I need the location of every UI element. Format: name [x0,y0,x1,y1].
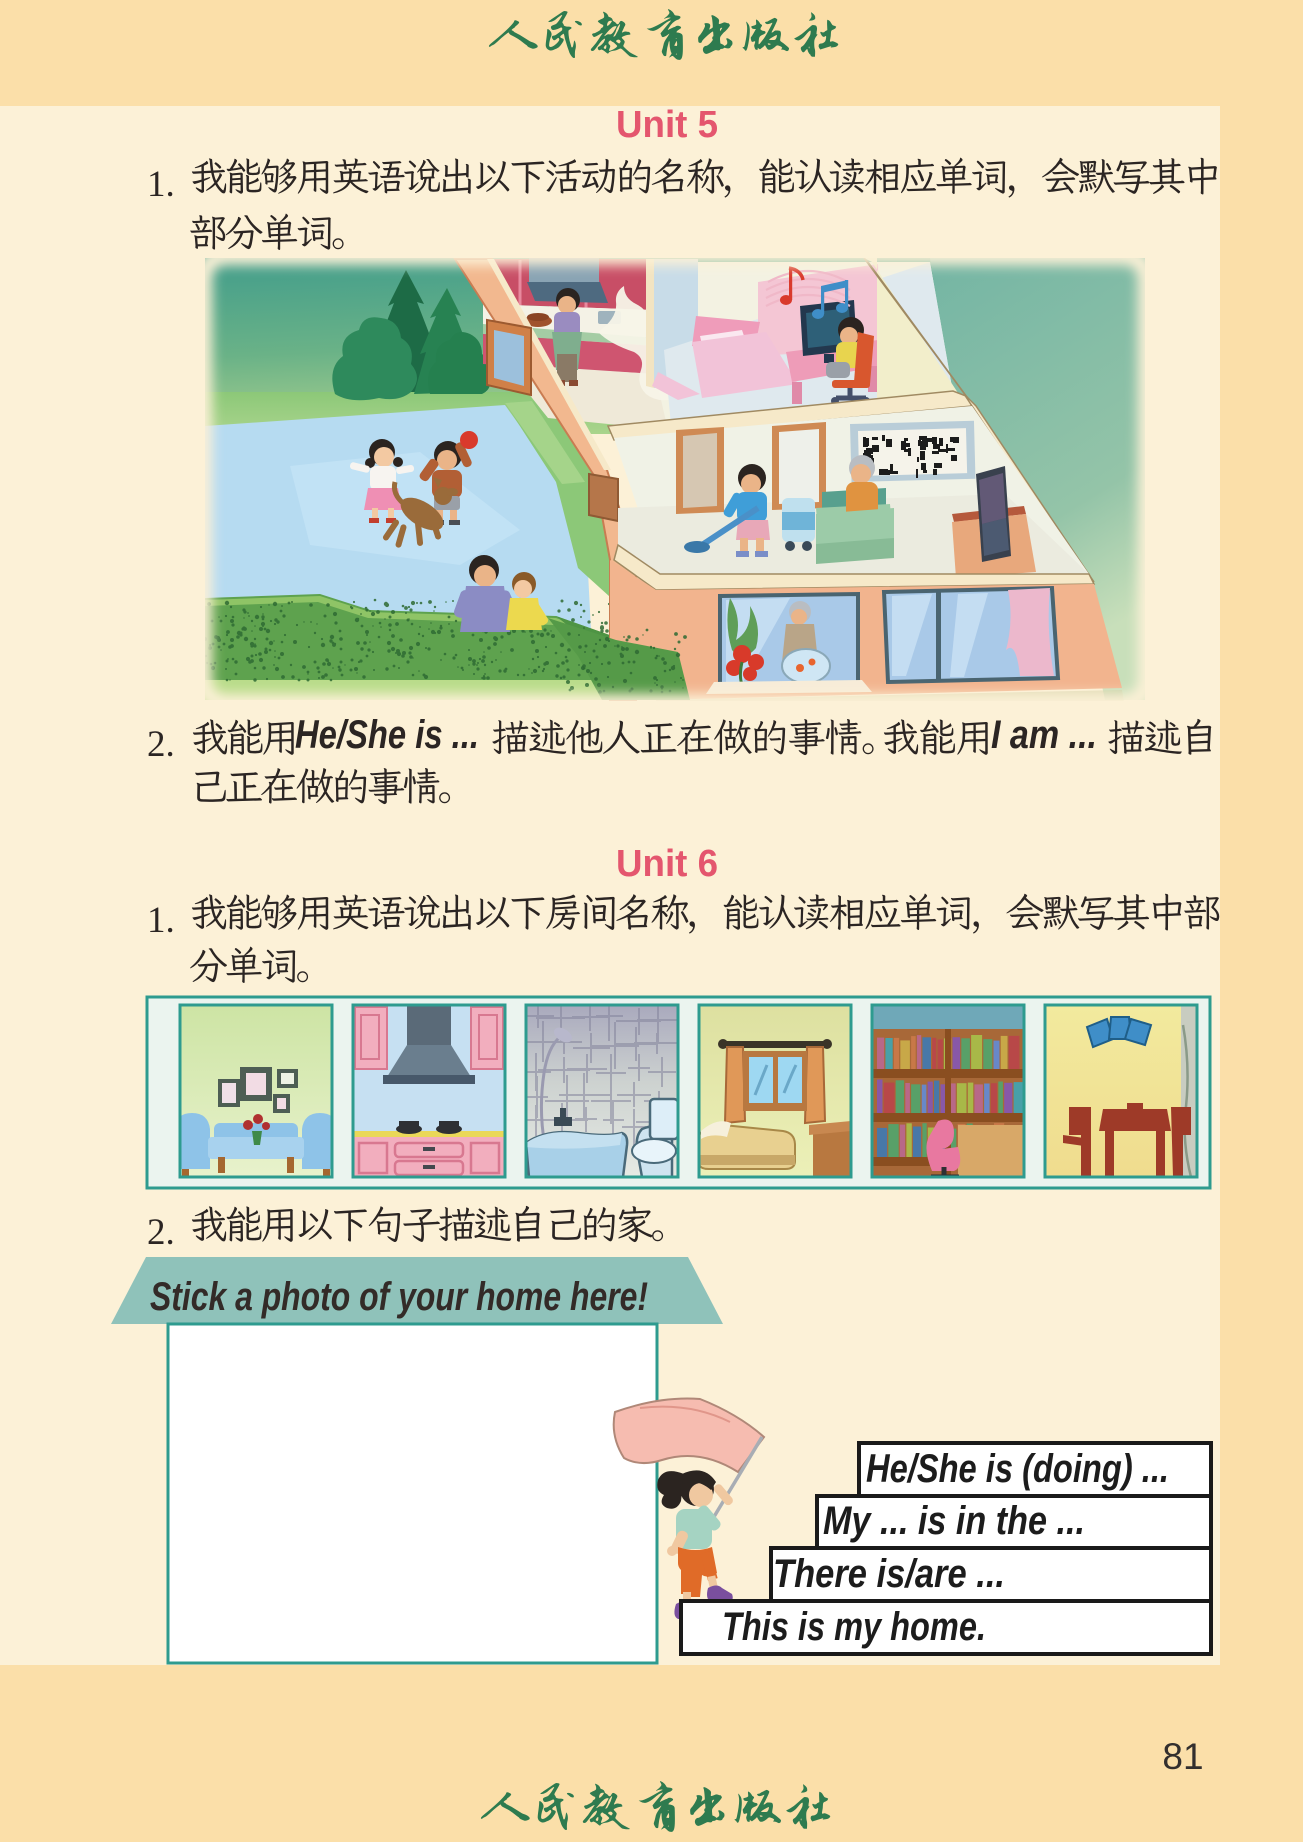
svg-text:81: 81 [1162,1736,1203,1777]
svg-text:This is my home.: This is my home. [722,1605,986,1649]
svg-text:2.: 2. [147,1212,175,1253]
svg-text:My ... is in the ...: My ... is in the ... [823,1499,1085,1543]
svg-text:He/She is (doing) ...: He/She is (doing) ... [866,1447,1169,1491]
svg-text:Unit 6: Unit 6 [616,843,718,885]
svg-text:Stick a photo of your home her: Stick a photo of your home here! [150,1275,648,1319]
svg-text:2.: 2. [147,724,175,765]
svg-text:There is/are ...: There is/are ... [773,1552,1005,1596]
svg-text:1.: 1. [147,164,175,205]
svg-text:Unit 5: Unit 5 [616,104,718,146]
svg-text:1.: 1. [147,900,175,941]
svg-text:I am ...: I am ... [991,713,1097,757]
svg-text:He/She is ...: He/She is ... [295,713,479,757]
